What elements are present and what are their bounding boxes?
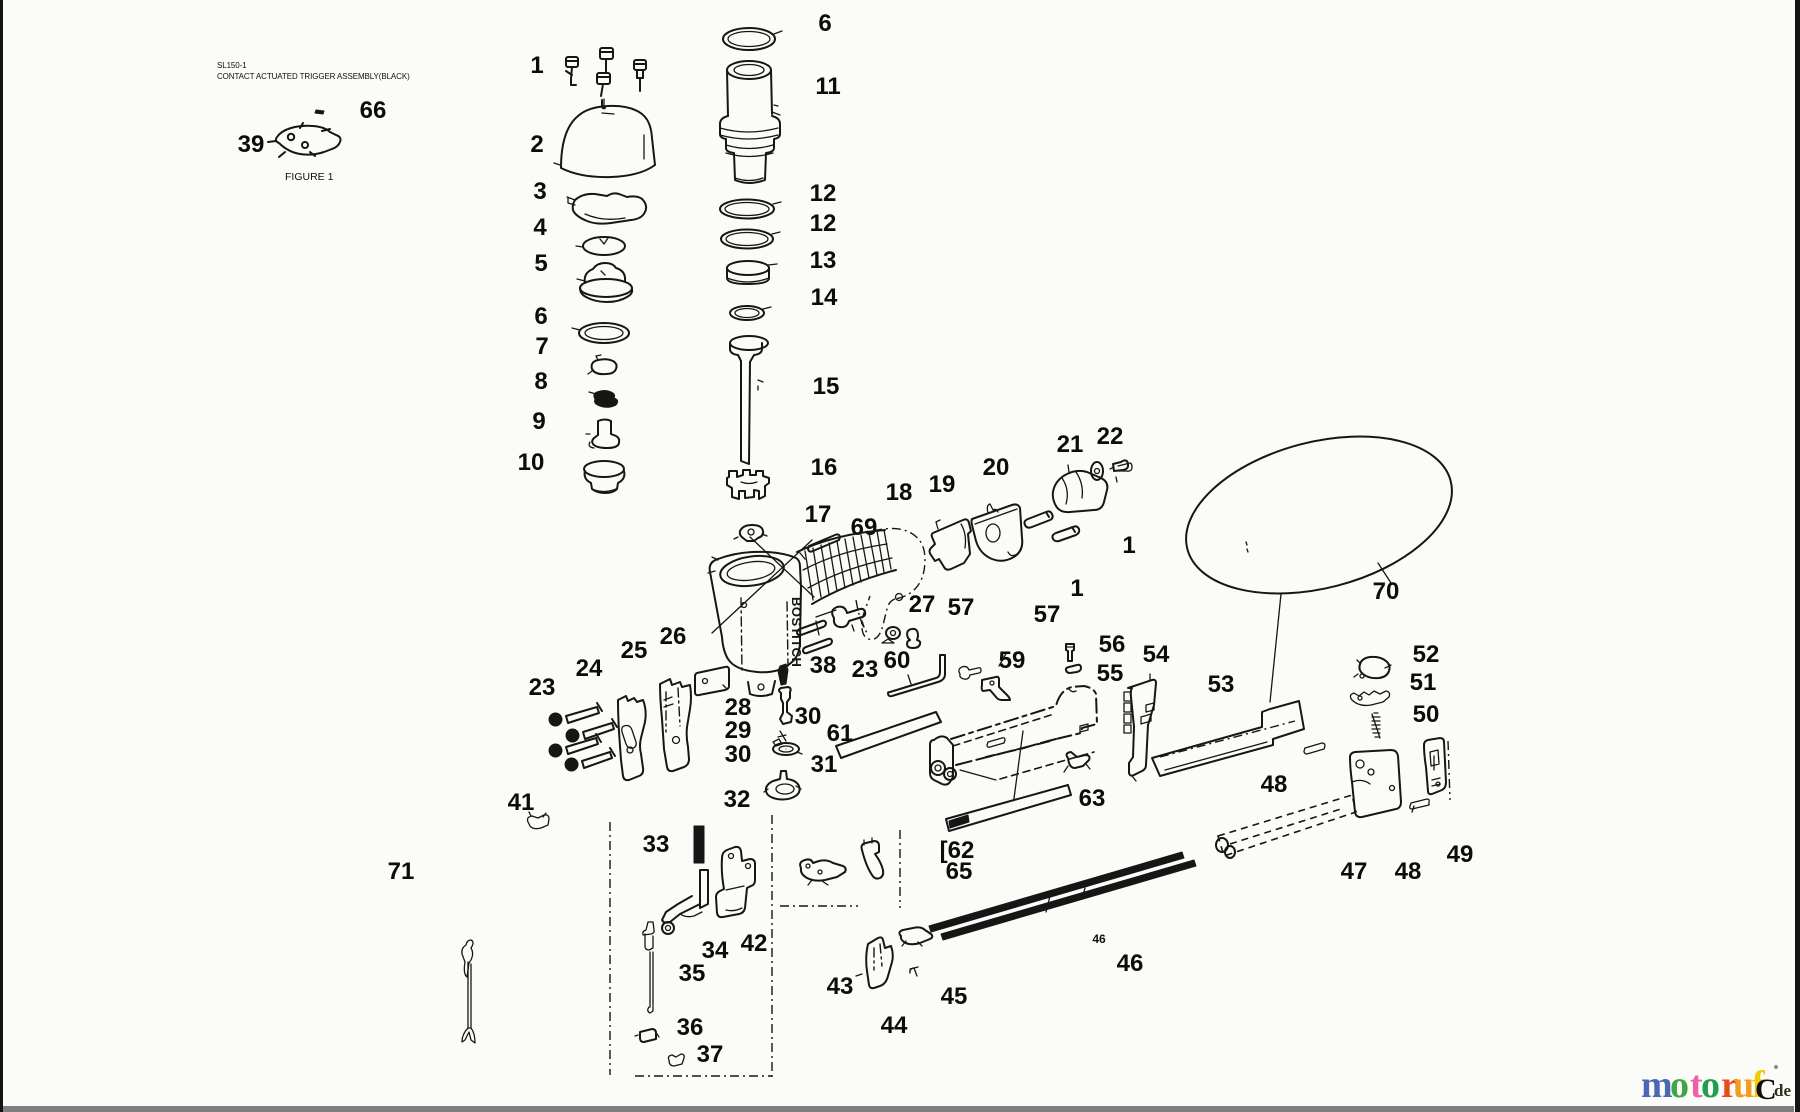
svg-text:48: 48 [1395,858,1422,885]
svg-text:11: 11 [815,73,840,100]
svg-text:SL150-1: SL150-1 [217,61,247,70]
svg-text:31: 31 [811,751,838,778]
svg-text:36: 36 [677,1014,704,1041]
svg-text:57: 57 [948,594,975,621]
svg-text:53: 53 [1208,671,1235,698]
svg-text:2: 2 [530,131,543,158]
svg-text:39: 39 [238,131,265,158]
svg-text:41: 41 [508,789,535,816]
svg-text:30: 30 [725,741,752,768]
svg-text:o: o [1670,1064,1689,1106]
svg-text:21: 21 [1057,431,1084,458]
svg-text:56: 56 [1099,631,1126,658]
svg-text:38: 38 [810,652,837,679]
svg-text:de: de [1774,1081,1791,1100]
svg-text:46: 46 [1117,950,1144,977]
svg-text:26: 26 [660,623,687,650]
svg-text:6: 6 [534,303,547,330]
svg-text:30: 30 [795,703,822,730]
svg-text:52: 52 [1413,641,1440,668]
svg-text:34: 34 [702,937,729,964]
svg-text:27: 27 [909,591,936,618]
svg-text:13: 13 [810,247,837,274]
svg-text:63: 63 [1079,785,1106,812]
svg-text:17: 17 [805,501,832,528]
svg-text:54: 54 [1143,641,1170,668]
svg-text:70: 70 [1373,578,1400,605]
svg-text:33: 33 [643,831,670,858]
svg-text:8: 8 [534,368,547,395]
svg-text:59: 59 [999,647,1026,674]
svg-text:20: 20 [983,454,1010,481]
svg-text:15: 15 [813,373,840,400]
svg-text:u: u [1733,1064,1754,1106]
svg-text:66: 66 [360,97,387,124]
svg-text:6: 6 [818,10,831,37]
svg-text:71: 71 [388,858,415,885]
svg-text:FIGURE 1: FIGURE 1 [285,171,334,183]
svg-text:9: 9 [532,408,545,435]
svg-text:46: 46 [1092,932,1106,946]
svg-text:24: 24 [576,655,603,682]
svg-text:45: 45 [941,983,968,1010]
svg-text:12: 12 [810,210,837,237]
svg-text:48: 48 [1261,771,1288,798]
svg-text:4: 4 [533,214,547,241]
svg-text:14: 14 [811,284,838,311]
svg-text:18: 18 [886,479,913,506]
svg-text:29: 29 [725,717,752,744]
svg-text:CONTACT ACTUATED TRIGGER ASSEM: CONTACT ACTUATED TRIGGER ASSEMBLY(BLACK) [217,72,410,81]
svg-text:32: 32 [724,786,751,813]
svg-text:47: 47 [1341,858,1368,885]
svg-text:m: m [1641,1064,1673,1106]
svg-text:61: 61 [827,720,854,747]
svg-text:7: 7 [535,333,548,360]
svg-text:57: 57 [1034,601,1061,628]
svg-text:50: 50 [1413,701,1440,728]
svg-text:69: 69 [851,514,878,541]
svg-text:22: 22 [1097,423,1124,450]
svg-text:1: 1 [1070,575,1083,602]
svg-text:10: 10 [518,449,545,476]
svg-text:5: 5 [534,250,547,277]
svg-text:35: 35 [679,960,706,987]
svg-text:42: 42 [741,930,768,957]
svg-text:43: 43 [827,973,854,1000]
svg-text:60: 60 [884,647,911,674]
svg-text:55: 55 [1097,660,1124,687]
svg-text:19: 19 [929,471,956,498]
svg-text:12: 12 [810,180,837,207]
svg-text:16: 16 [811,454,838,481]
svg-text:51: 51 [1410,669,1437,696]
svg-text:37: 37 [697,1041,724,1068]
svg-text:3: 3 [533,178,546,205]
svg-text:1: 1 [530,52,543,79]
svg-text:o: o [1701,1064,1720,1106]
svg-text:25: 25 [621,637,648,664]
svg-text:49: 49 [1447,841,1474,868]
svg-text:23: 23 [852,656,879,683]
svg-text:44: 44 [881,1012,908,1039]
svg-text:1: 1 [1122,532,1135,559]
svg-text:65: 65 [946,858,973,885]
svg-text:23: 23 [529,674,556,701]
